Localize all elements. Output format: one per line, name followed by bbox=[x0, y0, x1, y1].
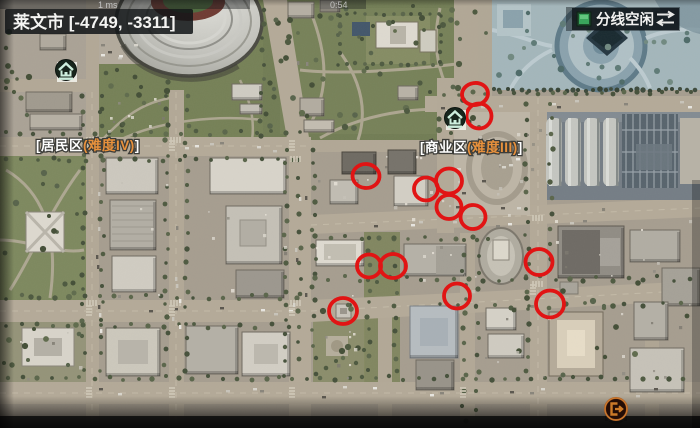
svg-text:0:54: 0:54 bbox=[330, 0, 348, 10]
svg-text:分线空闲: 分线空闲 bbox=[596, 11, 654, 29]
svg-text:1 ms: 1 ms bbox=[98, 0, 118, 10]
svg-text:[商业区(难度III)]: [商业区(难度III)] bbox=[420, 139, 523, 155]
svg-text:莱文市 [-4749, -3311]: 莱文市 [-4749, -3311] bbox=[13, 12, 176, 32]
svg-text:[居民区(难度IV)]: [居民区(难度IV)] bbox=[36, 137, 140, 153]
